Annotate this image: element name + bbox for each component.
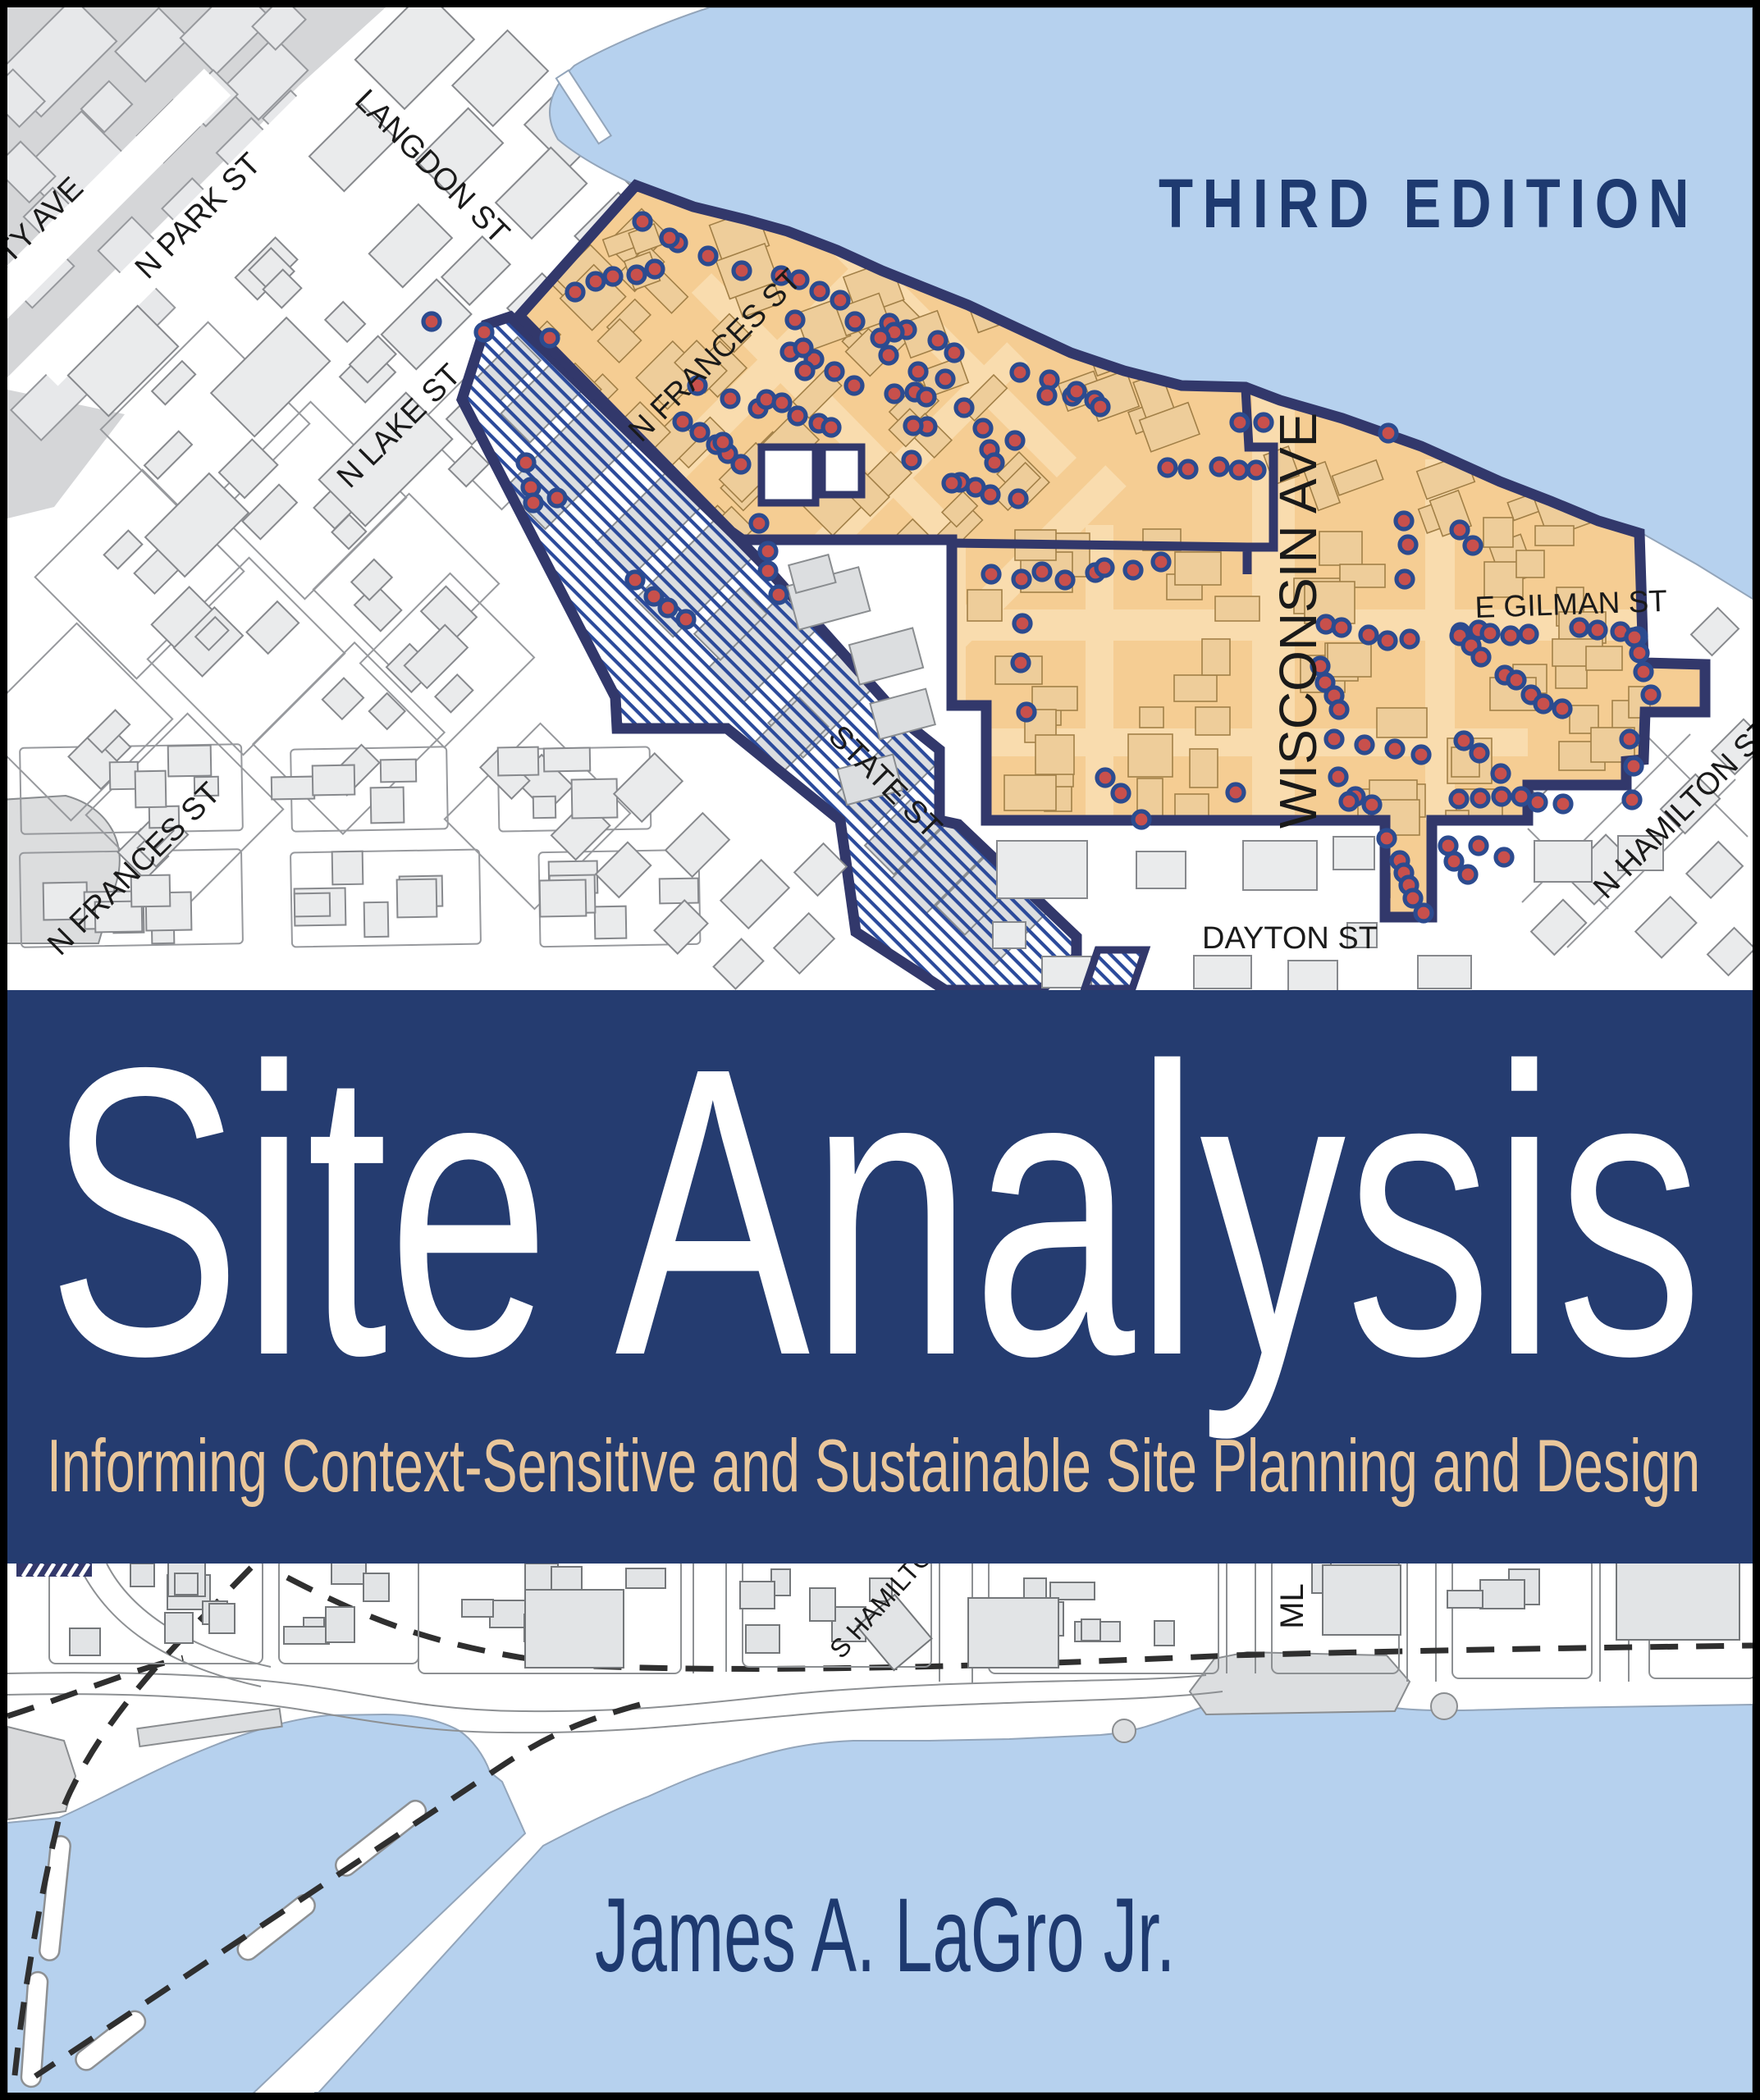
svg-text:ML: ML	[1274, 1583, 1310, 1629]
svg-text:Site Analysis: Site Analysis	[47, 982, 1703, 1443]
svg-text:THIRD EDITION: THIRD EDITION	[1159, 166, 1698, 243]
svg-text:WISCONSIN AVE: WISCONSIN AVE	[1269, 413, 1328, 829]
svg-text:E GILMAN ST: E GILMAN ST	[1474, 584, 1668, 624]
svg-text:James A. LaGro Jr.: James A. LaGro Jr.	[595, 1876, 1175, 1993]
svg-text:Informing Context-Sensitive an: Informing Context-Sensitive and Sustaina…	[47, 1424, 1700, 1508]
svg-text:DAYTON ST: DAYTON ST	[1202, 921, 1378, 956]
